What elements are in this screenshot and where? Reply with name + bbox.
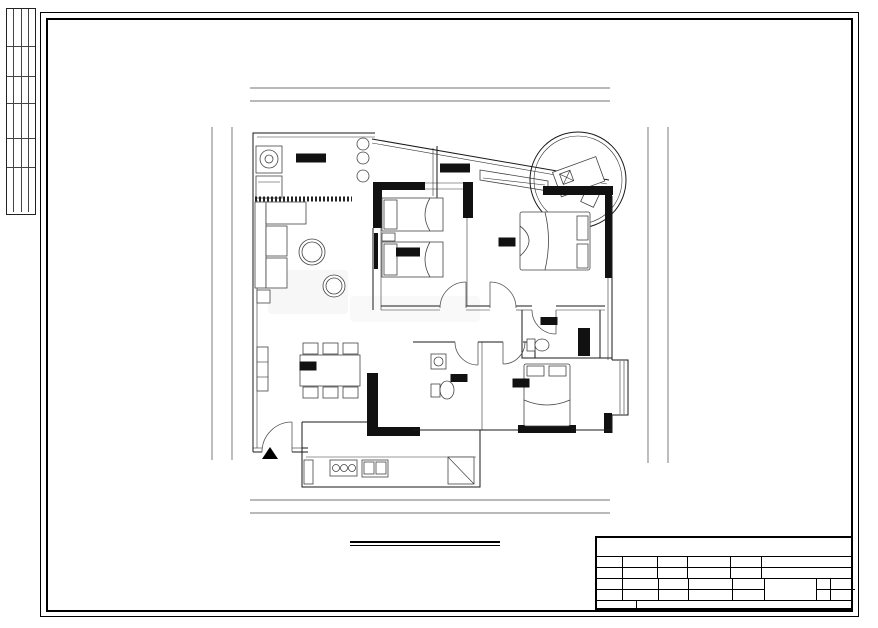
room-label-guest-bath [451,374,468,382]
tb-scale-label [659,590,689,600]
tb-note-label [597,601,637,611]
title-underline-thick [350,541,500,543]
tb-paper-label [733,579,765,589]
tb-builder-label [731,568,763,578]
tb-date-value [623,590,659,600]
tb-design-label [597,557,623,567]
tb-approve-label [658,568,688,578]
children-room-furniture [382,198,443,277]
tb-design-value [623,557,658,567]
sheet-title [350,539,500,549]
tb-draft-label [597,568,623,578]
tb-date-label [597,590,623,600]
tb-owner-value [688,557,731,567]
tb-quote-value [623,579,659,589]
title-underline-thin [350,545,500,546]
room-label-laundry-balcony [296,154,326,163]
floor-plan [0,0,878,628]
tb-builder-value [762,568,851,578]
room-label-master-bath [541,317,558,325]
tb-check-label [659,579,689,589]
second-bedroom-furniture [524,364,570,426]
tb-quote-label [597,579,623,589]
tb-owner-label [658,557,688,567]
countersign-table [6,8,36,215]
tb-no-label [817,590,831,600]
kitchen-fixtures [304,457,476,484]
tb-drawing-name [765,579,817,600]
tb-check-value [689,579,733,589]
tb-approve-value [688,568,731,578]
tb-draft-value [623,568,658,578]
tb-class-value [831,579,855,589]
room-label-second-bedroom [513,379,530,388]
tb-project-label [731,557,763,567]
room-label-children-room [396,248,420,257]
tb-no-value [831,590,855,600]
room-label-master-bedroom [499,238,516,247]
drawing-sheet [0,0,878,628]
entry-arrow-icon [262,447,278,459]
title-block [595,536,853,610]
tb-project-value [762,557,851,567]
tb-class-label [817,579,831,589]
master-bedroom-furniture [520,212,590,270]
tb-content-label [733,590,765,600]
tb-scale-value [689,590,733,600]
room-label-dining [300,362,317,371]
entry-marker [262,447,278,459]
watermark-smudge [268,270,480,322]
company-name [597,538,851,557]
room-label-leisure-balcony [440,164,470,173]
